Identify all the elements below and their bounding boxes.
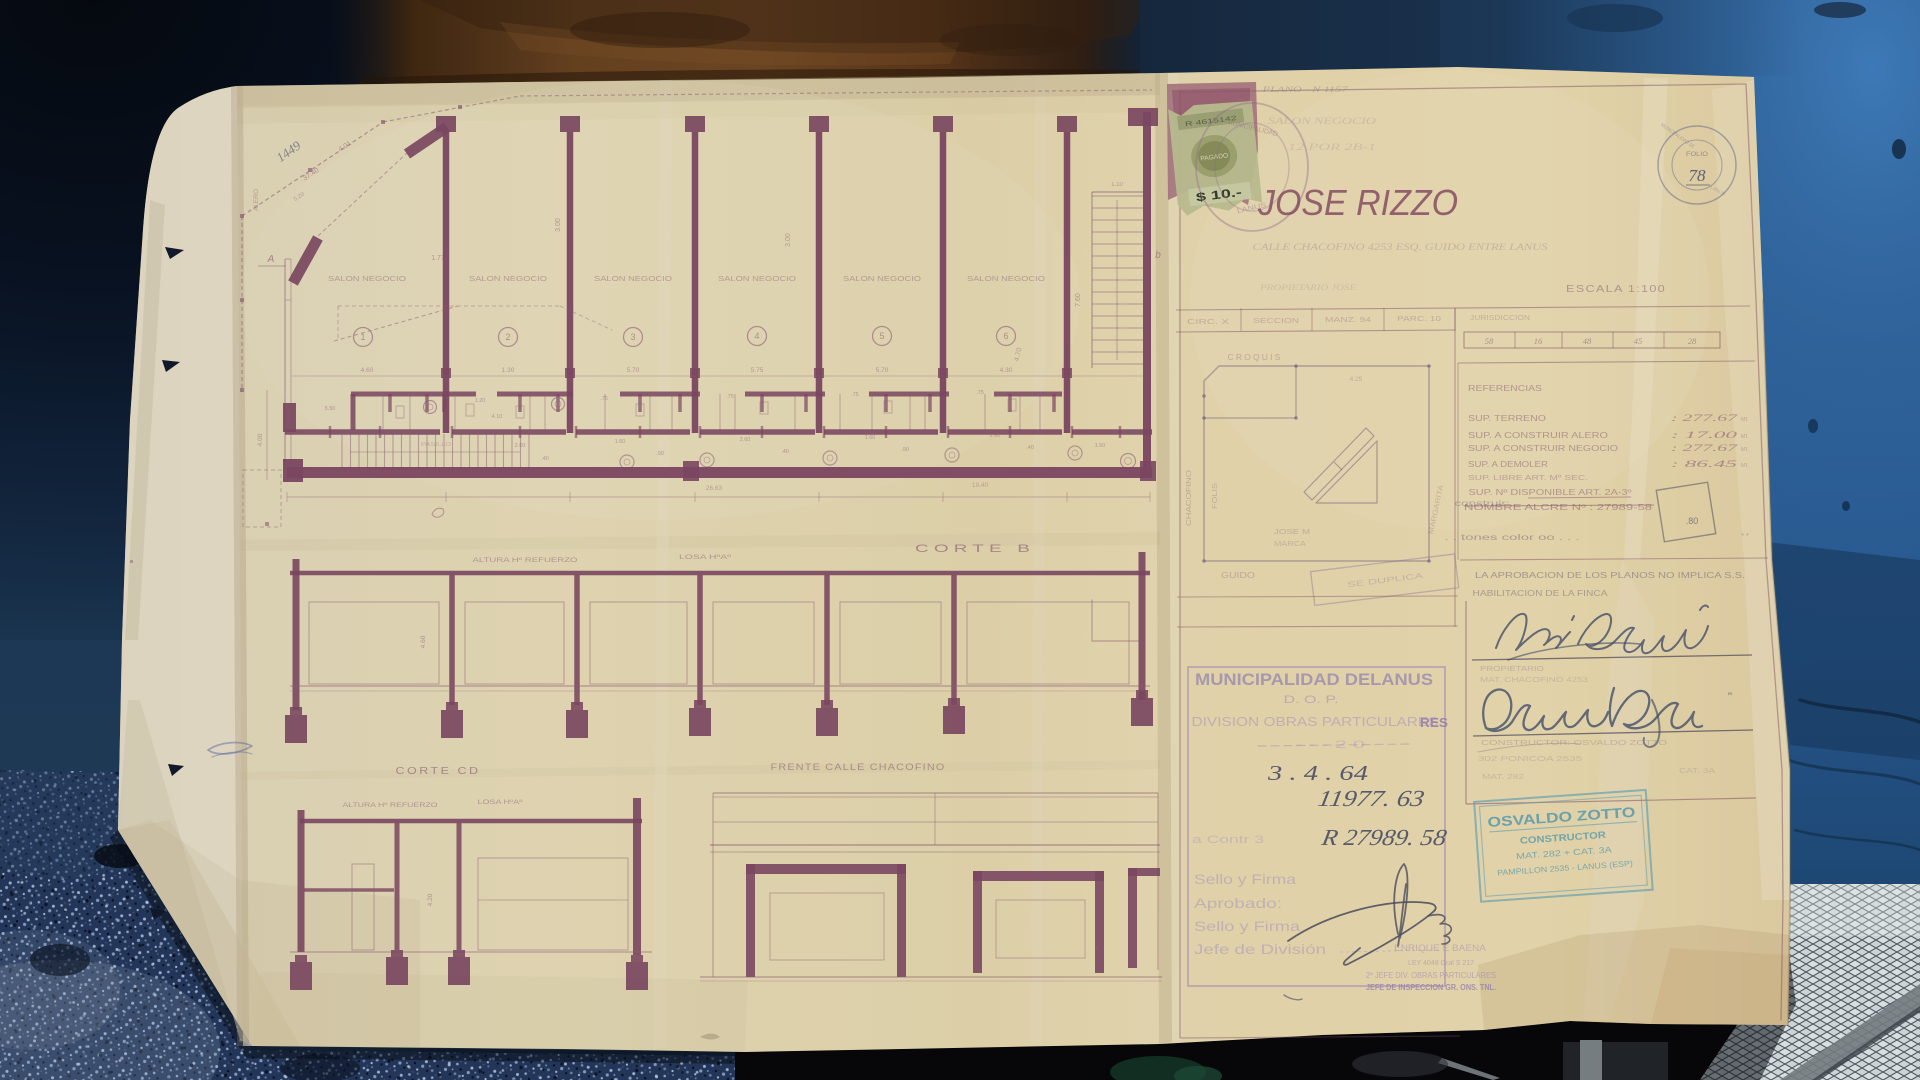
svg-text:SALON NEGOCIO: SALON NEGOCIO bbox=[843, 274, 921, 283]
svg-text:1.20: 1.20 bbox=[475, 398, 486, 404]
svg-text:.15: .15 bbox=[939, 368, 948, 374]
svg-text:JOSE RIZZO: JOSE RIZZO bbox=[1257, 182, 1458, 223]
svg-text:5.75: 5.75 bbox=[751, 367, 764, 374]
svg-text:2: 2 bbox=[505, 332, 510, 342]
svg-text:MANZ. 94: MANZ. 94 bbox=[1325, 315, 1371, 324]
svg-text:Sello y Firma: Sello y Firma bbox=[1194, 871, 1296, 887]
svg-text:PASILLO: PASILLO bbox=[421, 442, 452, 448]
svg-text:4.60: 4.60 bbox=[361, 367, 374, 374]
svg-text:SECCION: SECCION bbox=[1253, 316, 1299, 325]
svg-text:HABILITACION DE LA FINCA: HABILITACION DE LA FINCA bbox=[1473, 589, 1609, 598]
svg-text:: 86.45: : 86.45 bbox=[1671, 459, 1738, 469]
svg-text:19.40: 19.40 bbox=[972, 482, 989, 489]
svg-text:.75: .75 bbox=[726, 394, 734, 400]
svg-text:- - - 2 0: - - - 2 0 bbox=[1295, 739, 1365, 751]
svg-text:PARC. 10: PARC. 10 bbox=[1397, 314, 1441, 323]
svg-text:SALON NEGOCIO: SALON NEGOCIO bbox=[1268, 116, 1377, 126]
svg-text:4.00: 4.00 bbox=[257, 433, 264, 446]
svg-text:ENRIQUE E BAENA: ENRIQUE E BAENA bbox=[1394, 943, 1486, 953]
svg-text:LOSA HºAº: LOSA HºAº bbox=[679, 554, 732, 561]
svg-text:1.10: 1.10 bbox=[1111, 182, 1123, 188]
svg-text:3 . 4 . 64: 3 . 4 . 64 bbox=[1267, 761, 1369, 785]
svg-text:Mt: Mt bbox=[1741, 417, 1748, 423]
svg-text:4.60: 4.60 bbox=[420, 635, 427, 648]
svg-text:A: A bbox=[267, 254, 275, 265]
svg-text:SALON NEGOCIO: SALON NEGOCIO bbox=[328, 274, 406, 283]
svg-text:.80: .80 bbox=[1686, 516, 1699, 526]
svg-text:b: b bbox=[1155, 250, 1161, 261]
svg-text:SUP. TERRENO: SUP. TERRENO bbox=[1468, 414, 1546, 423]
svg-text:26.63: 26.63 bbox=[706, 485, 723, 492]
svg-text:SUP. A CONSTRUIR ALERO: SUP. A CONSTRUIR ALERO bbox=[1468, 431, 1608, 440]
svg-text:2º JEFE DIV. OBRAS PARTICULARE: 2º JEFE DIV. OBRAS PARTICULARES bbox=[1366, 971, 1496, 980]
svg-text:: 277.67: : 277.67 bbox=[1671, 413, 1738, 423]
svg-text:JEFE DE INSPECCION GR. ONS. TN: JEFE DE INSPECCION GR. ONS. TNL. bbox=[1366, 983, 1496, 992]
svg-text:.15: .15 bbox=[1063, 368, 1072, 374]
svg-text:1.30: 1.30 bbox=[502, 367, 515, 374]
svg-text:D. O. P.: D. O. P. bbox=[1284, 694, 1339, 706]
svg-text:MAT. CHACOFINO 4253: MAT. CHACOFINO 4253 bbox=[1480, 677, 1588, 684]
svg-text:PROPIETARIO: PROPIETARIO bbox=[1480, 666, 1545, 673]
svg-text:MUNICIPALIDAD DELANUS: MUNICIPALIDAD DELANUS bbox=[1195, 670, 1433, 689]
svg-text:ALERO: ALERO bbox=[253, 189, 260, 211]
svg-text:Mt: Mt bbox=[1741, 463, 1748, 469]
svg-text:LOSA HºAº: LOSA HºAº bbox=[478, 799, 524, 806]
svg-text:3: 3 bbox=[630, 332, 635, 342]
svg-text:.75: .75 bbox=[976, 390, 984, 396]
svg-text:1.60: 1.60 bbox=[615, 439, 626, 445]
svg-text:1.60: 1.60 bbox=[865, 435, 876, 441]
svg-text:SUP. Nº DISPONIBLE ART. 2A-3º: SUP. Nº DISPONIBLE ART. 2A-3º bbox=[1469, 488, 1632, 497]
svg-text:11977. 63: 11977. 63 bbox=[1316, 786, 1427, 812]
svg-text:LA APROBACION DE LOS PLANOS NO: LA APROBACION DE LOS PLANOS NO IMPLICA S… bbox=[1475, 571, 1745, 580]
svg-text:.15: .15 bbox=[566, 368, 575, 374]
svg-text:5.70: 5.70 bbox=[627, 367, 640, 374]
svg-text:302 PONICOA 2535: 302 PONICOA 2535 bbox=[1478, 756, 1582, 763]
svg-text:REFERENCIAS: REFERENCIAS bbox=[1468, 383, 1542, 393]
svg-text:SALON NEGOCIO: SALON NEGOCIO bbox=[594, 274, 672, 283]
svg-text:.40: .40 bbox=[1026, 445, 1034, 451]
svg-text:4.30: 4.30 bbox=[1000, 367, 1013, 374]
svg-text:.90: .90 bbox=[656, 451, 664, 457]
svg-text:ALTURA Hº REFUERZO: ALTURA Hº REFUERZO bbox=[343, 802, 438, 809]
svg-text:4.25: 4.25 bbox=[1350, 376, 1363, 383]
svg-text:.40: .40 bbox=[541, 456, 549, 462]
svg-text:MAT. 282: MAT. 282 bbox=[1482, 774, 1524, 781]
svg-text:.15: .15 bbox=[442, 368, 451, 374]
svg-text:CIRC. X: CIRC. X bbox=[1187, 317, 1229, 326]
svg-text:: 17.00: : 17.00 bbox=[1671, 430, 1738, 440]
svg-text:CORTE B: CORTE B bbox=[915, 543, 1035, 555]
svg-text:.15: .15 bbox=[815, 368, 824, 374]
svg-text:. . tones color oo . . .: . . tones color oo . . . bbox=[1445, 532, 1580, 542]
svg-text:R 27989. 58: R 27989. 58 bbox=[1319, 825, 1449, 851]
svg-text:FOLIO: FOLIO bbox=[1686, 151, 1708, 158]
svg-text:.40: .40 bbox=[781, 449, 789, 455]
svg-text:ESCALA 1:100: ESCALA 1:100 bbox=[1566, 284, 1666, 295]
svg-text:FRENTE CALLE CHACOFINO: FRENTE CALLE CHACOFINO bbox=[771, 762, 946, 772]
svg-text:2.60: 2.60 bbox=[990, 433, 1001, 439]
svg-text:.75: .75 bbox=[600, 396, 608, 402]
svg-text:1.50: 1.50 bbox=[1095, 443, 1106, 449]
svg-text:Mt: Mt bbox=[1741, 447, 1748, 453]
svg-text:SUP. LIBRE ART. Mº SEC.: SUP. LIBRE ART. Mº SEC. bbox=[1468, 473, 1588, 482]
svg-text:2.60: 2.60 bbox=[740, 437, 751, 443]
svg-text:Mt: Mt bbox=[1741, 434, 1748, 440]
svg-text:SALON NEGOCIO: SALON NEGOCIO bbox=[718, 274, 796, 283]
svg-text:'': '' bbox=[1728, 691, 1732, 703]
svg-text:GUIDO: GUIDO bbox=[1221, 571, 1255, 580]
svg-text:RES: RES bbox=[1420, 715, 1448, 730]
svg-text:MARCA: MARCA bbox=[1274, 541, 1306, 548]
svg-text:.15: .15 bbox=[691, 368, 700, 374]
svg-text:LEY 4048 Gral S 217: LEY 4048 Gral S 217 bbox=[1408, 960, 1474, 967]
svg-text:78: 78 bbox=[1689, 166, 1707, 185]
svg-text:5: 5 bbox=[879, 331, 884, 341]
svg-text:5.70: 5.70 bbox=[876, 367, 889, 374]
svg-text:58: 58 bbox=[1485, 336, 1494, 346]
svg-text:CALLE CHACOFINO 4253 ESQ. GU: CALLE CHACOFINO 4253 ESQ. GUIDO ENTRE LA… bbox=[1253, 242, 1549, 252]
svg-text:ALTURA Hº REFUERZO: ALTURA Hº REFUERZO bbox=[473, 557, 578, 564]
svg-text:PLANO - N 1157: PLANO - N 1157 bbox=[1261, 85, 1349, 94]
svg-text:45: 45 bbox=[1634, 336, 1643, 346]
svg-text:5.50: 5.50 bbox=[325, 406, 336, 412]
svg-text:CHACOFINO: CHACOFINO bbox=[1186, 469, 1193, 526]
svg-text:4.20: 4.20 bbox=[427, 893, 434, 906]
svg-text:2.60: 2.60 bbox=[515, 443, 526, 449]
svg-text:SUP. A DEMOLER: SUP. A DEMOLER bbox=[1468, 460, 1548, 469]
svg-text:* *: * * bbox=[1741, 533, 1749, 540]
svg-text:3.00: 3.00 bbox=[555, 218, 562, 232]
svg-text:Sello y Firma: Sello y Firma bbox=[1194, 918, 1300, 934]
svg-text:SALON NEGOCIO: SALON NEGOCIO bbox=[967, 274, 1045, 283]
svg-text:SUP. A CONSTRUIR NEGOCIO: SUP. A CONSTRUIR NEGOCIO bbox=[1468, 444, 1618, 453]
svg-text:FOLIS: FOLIS bbox=[1212, 483, 1219, 509]
svg-text:DIVISION OBRAS PARTICULARES: DIVISION OBRAS PARTICULARES bbox=[1192, 714, 1439, 729]
svg-text:28: 28 bbox=[1688, 336, 1697, 346]
svg-text:12 POR 2B-1: 12 POR 2B-1 bbox=[1288, 142, 1376, 152]
svg-text:CROQUIS: CROQUIS bbox=[1228, 353, 1283, 362]
svg-text:CAT. 3A: CAT. 3A bbox=[1679, 768, 1715, 775]
svg-text:JURISDICCION: JURISDICCION bbox=[1470, 315, 1530, 322]
svg-text:4.10: 4.10 bbox=[492, 414, 503, 420]
svg-text:SALON NEGOCIO: SALON NEGOCIO bbox=[469, 274, 547, 283]
svg-text:.75: .75 bbox=[851, 392, 859, 398]
svg-text:7.60: 7.60 bbox=[1075, 293, 1082, 307]
svg-text:Aprobado:: Aprobado: bbox=[1194, 895, 1282, 911]
svg-text:16: 16 bbox=[1534, 336, 1543, 346]
svg-text:PROPIETARIO JOSE: PROPIETARIO JOSE bbox=[1259, 282, 1357, 292]
svg-text:6: 6 bbox=[1003, 331, 1008, 341]
svg-text:JOSE M: JOSE M bbox=[1274, 529, 1310, 536]
svg-text:construir:: construir: bbox=[1455, 499, 1510, 508]
svg-text:4: 4 bbox=[754, 331, 759, 341]
svg-text:: 277.67: : 277.67 bbox=[1671, 443, 1738, 453]
svg-text:3.00: 3.00 bbox=[785, 233, 792, 247]
svg-text:.90: .90 bbox=[901, 447, 909, 453]
svg-text:CORTE CD: CORTE CD bbox=[396, 766, 481, 777]
svg-text:Jefe de División: Jefe de División bbox=[1194, 941, 1326, 957]
svg-text:a Contr 3: a Contr 3 bbox=[1192, 834, 1264, 846]
svg-text:48: 48 bbox=[1583, 336, 1592, 346]
